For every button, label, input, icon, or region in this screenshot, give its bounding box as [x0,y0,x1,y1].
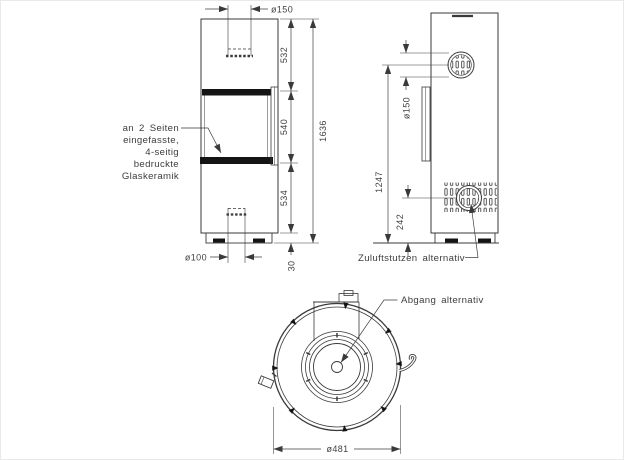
dim-side-flue-center-height: 1247 [374,171,384,193]
dim-front-height-window: 540 [279,119,289,135]
front-glass-window [200,87,278,165]
top-rear-panel [313,291,359,342]
top-outlet-center [332,362,343,373]
dim-side-flue-diameter: ø150 [402,97,412,119]
glass-note: an 2 Seiten eingefasste, 4-seitig bedruc… [122,123,221,182]
front-view [200,5,278,263]
side-view [373,13,499,243]
dim-front-air-inlet-diameter: ø100 [185,253,207,263]
dim-front-flue-diameter: ø150 [271,5,293,15]
front-flue-collar-hidden [226,5,253,56]
top-view [258,291,415,432]
glass-note-line-3: 4-seitig [145,147,179,158]
dim-top-outer-diameter: ø481 [326,444,348,454]
label-air-inlet-alternative: Zuluftstutzen alternativ [358,253,465,264]
glass-note-line-5: Glaskeramik [122,171,179,182]
front-body-outline [201,19,278,233]
side-glass-edge [422,87,430,161]
glass-note-line-1: an 2 Seiten [123,123,179,134]
front-dimensions: ø150 532 540 534 30 1636 ø100 [185,5,328,272]
stove-technical-drawing: an 2 Seiten eingefasste, 4-seitig bedruc… [1,1,624,460]
air-inlet-leader-line [465,204,478,258]
dim-side-inlet-center-height: 242 [395,214,405,230]
front-base [206,233,272,243]
top-door-handle [400,356,415,371]
glass-note-line-2: eingefasste, [123,135,179,146]
side-flue-outlet [448,52,474,78]
label-outlet-alternative: Abgang alternativ [401,295,484,306]
dim-front-total-height: 1636 [318,120,328,142]
dim-front-base-height: 30 [287,261,297,272]
side-air-inlet-stub [457,186,482,211]
glass-note-line-4: bedruckte [134,159,179,170]
dim-front-height-bottom: 534 [279,190,289,206]
stove-technical-drawing-page: an 2 Seiten eingefasste, 4-seitig bedruc… [0,0,624,460]
front-air-inlet-hidden [227,208,247,263]
dim-front-height-top: 532 [279,47,289,63]
side-base [435,233,495,243]
top-inner-rings [302,332,373,403]
